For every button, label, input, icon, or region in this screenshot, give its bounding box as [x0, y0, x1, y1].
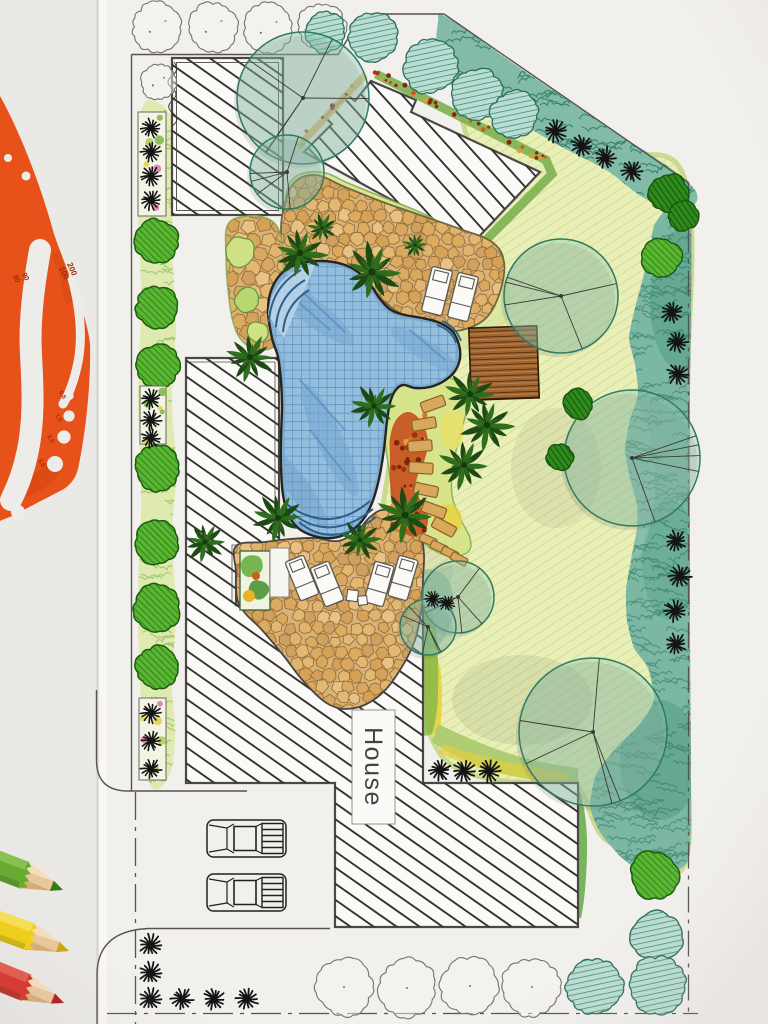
- svg-text:House: House: [359, 727, 387, 807]
